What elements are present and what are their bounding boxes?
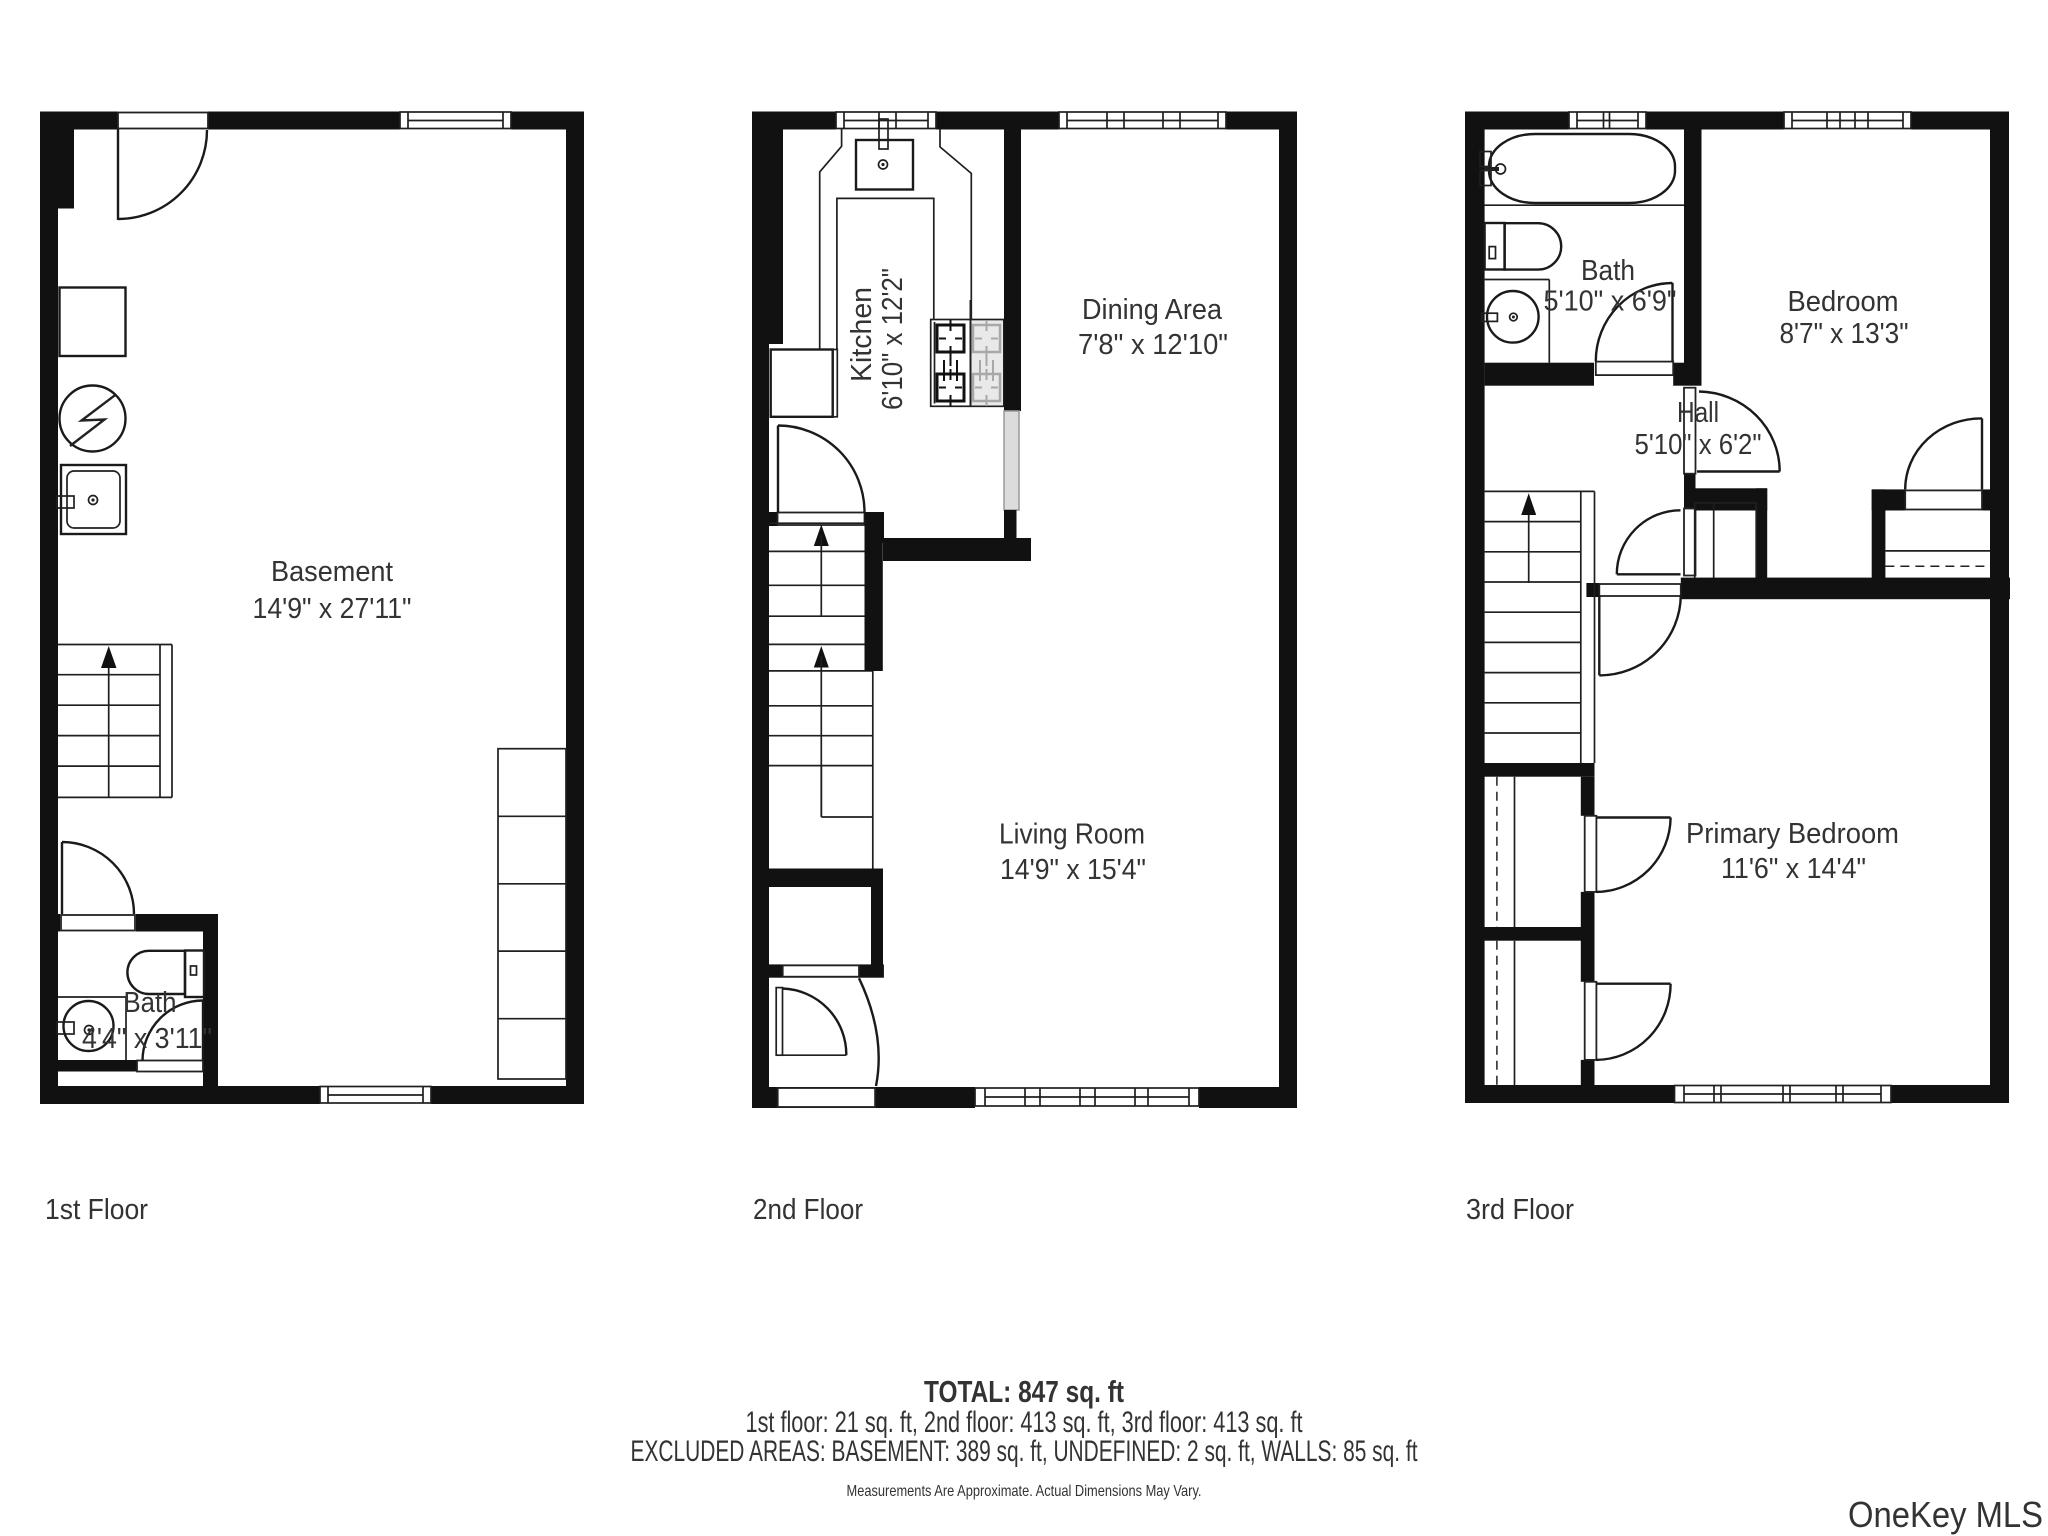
svg-text:OneKey MLS: OneKey MLS <box>1848 1494 2043 1535</box>
svg-text:Basement: Basement <box>271 556 393 588</box>
svg-text:Bath: Bath <box>1581 255 1635 287</box>
svg-text:Living Room: Living Room <box>999 819 1145 851</box>
svg-text:Bath: Bath <box>124 987 177 1019</box>
svg-text:5'10" x 6'2": 5'10" x 6'2" <box>1635 429 1762 461</box>
svg-text:7'8" x 12'10": 7'8" x 12'10" <box>1078 329 1228 361</box>
svg-text:Bedroom: Bedroom <box>1788 286 1899 318</box>
svg-text:2nd Floor: 2nd Floor <box>753 1194 863 1226</box>
svg-text:6'10" x 12'2": 6'10" x 12'2" <box>877 268 909 410</box>
svg-text:Dining Area: Dining Area <box>1082 294 1222 326</box>
svg-text:14'9" x 15'4": 14'9" x 15'4" <box>1000 854 1146 886</box>
svg-text:5'10" x 6'9": 5'10" x 6'9" <box>1544 286 1677 318</box>
svg-text:14'9" x 27'11": 14'9" x 27'11" <box>253 593 412 625</box>
svg-text:Measurements Are Approximate.: Measurements Are Approximate. Actual Dim… <box>847 1483 1202 1500</box>
svg-text:1st Floor: 1st Floor <box>45 1194 148 1226</box>
svg-text:Primary Bedroom: Primary Bedroom <box>1686 818 1899 850</box>
svg-text:8'7" x 13'3": 8'7" x 13'3" <box>1780 318 1909 350</box>
svg-text:3rd Floor: 3rd Floor <box>1466 1194 1574 1226</box>
svg-text:Hall: Hall <box>1677 397 1719 429</box>
svg-text:Kitchen: Kitchen <box>846 287 878 382</box>
svg-text:4'4" x 3'11": 4'4" x 3'11" <box>82 1023 212 1055</box>
svg-text:TOTAL: 847 sq. ft: TOTAL: 847 sq. ft <box>924 1374 1124 1409</box>
svg-text:11'6" x 14'4": 11'6" x 14'4" <box>1721 853 1866 885</box>
svg-text:EXCLUDED AREAS: BASEMENT: 389: EXCLUDED AREAS: BASEMENT: 389 sq. ft, UN… <box>631 1435 1418 1468</box>
